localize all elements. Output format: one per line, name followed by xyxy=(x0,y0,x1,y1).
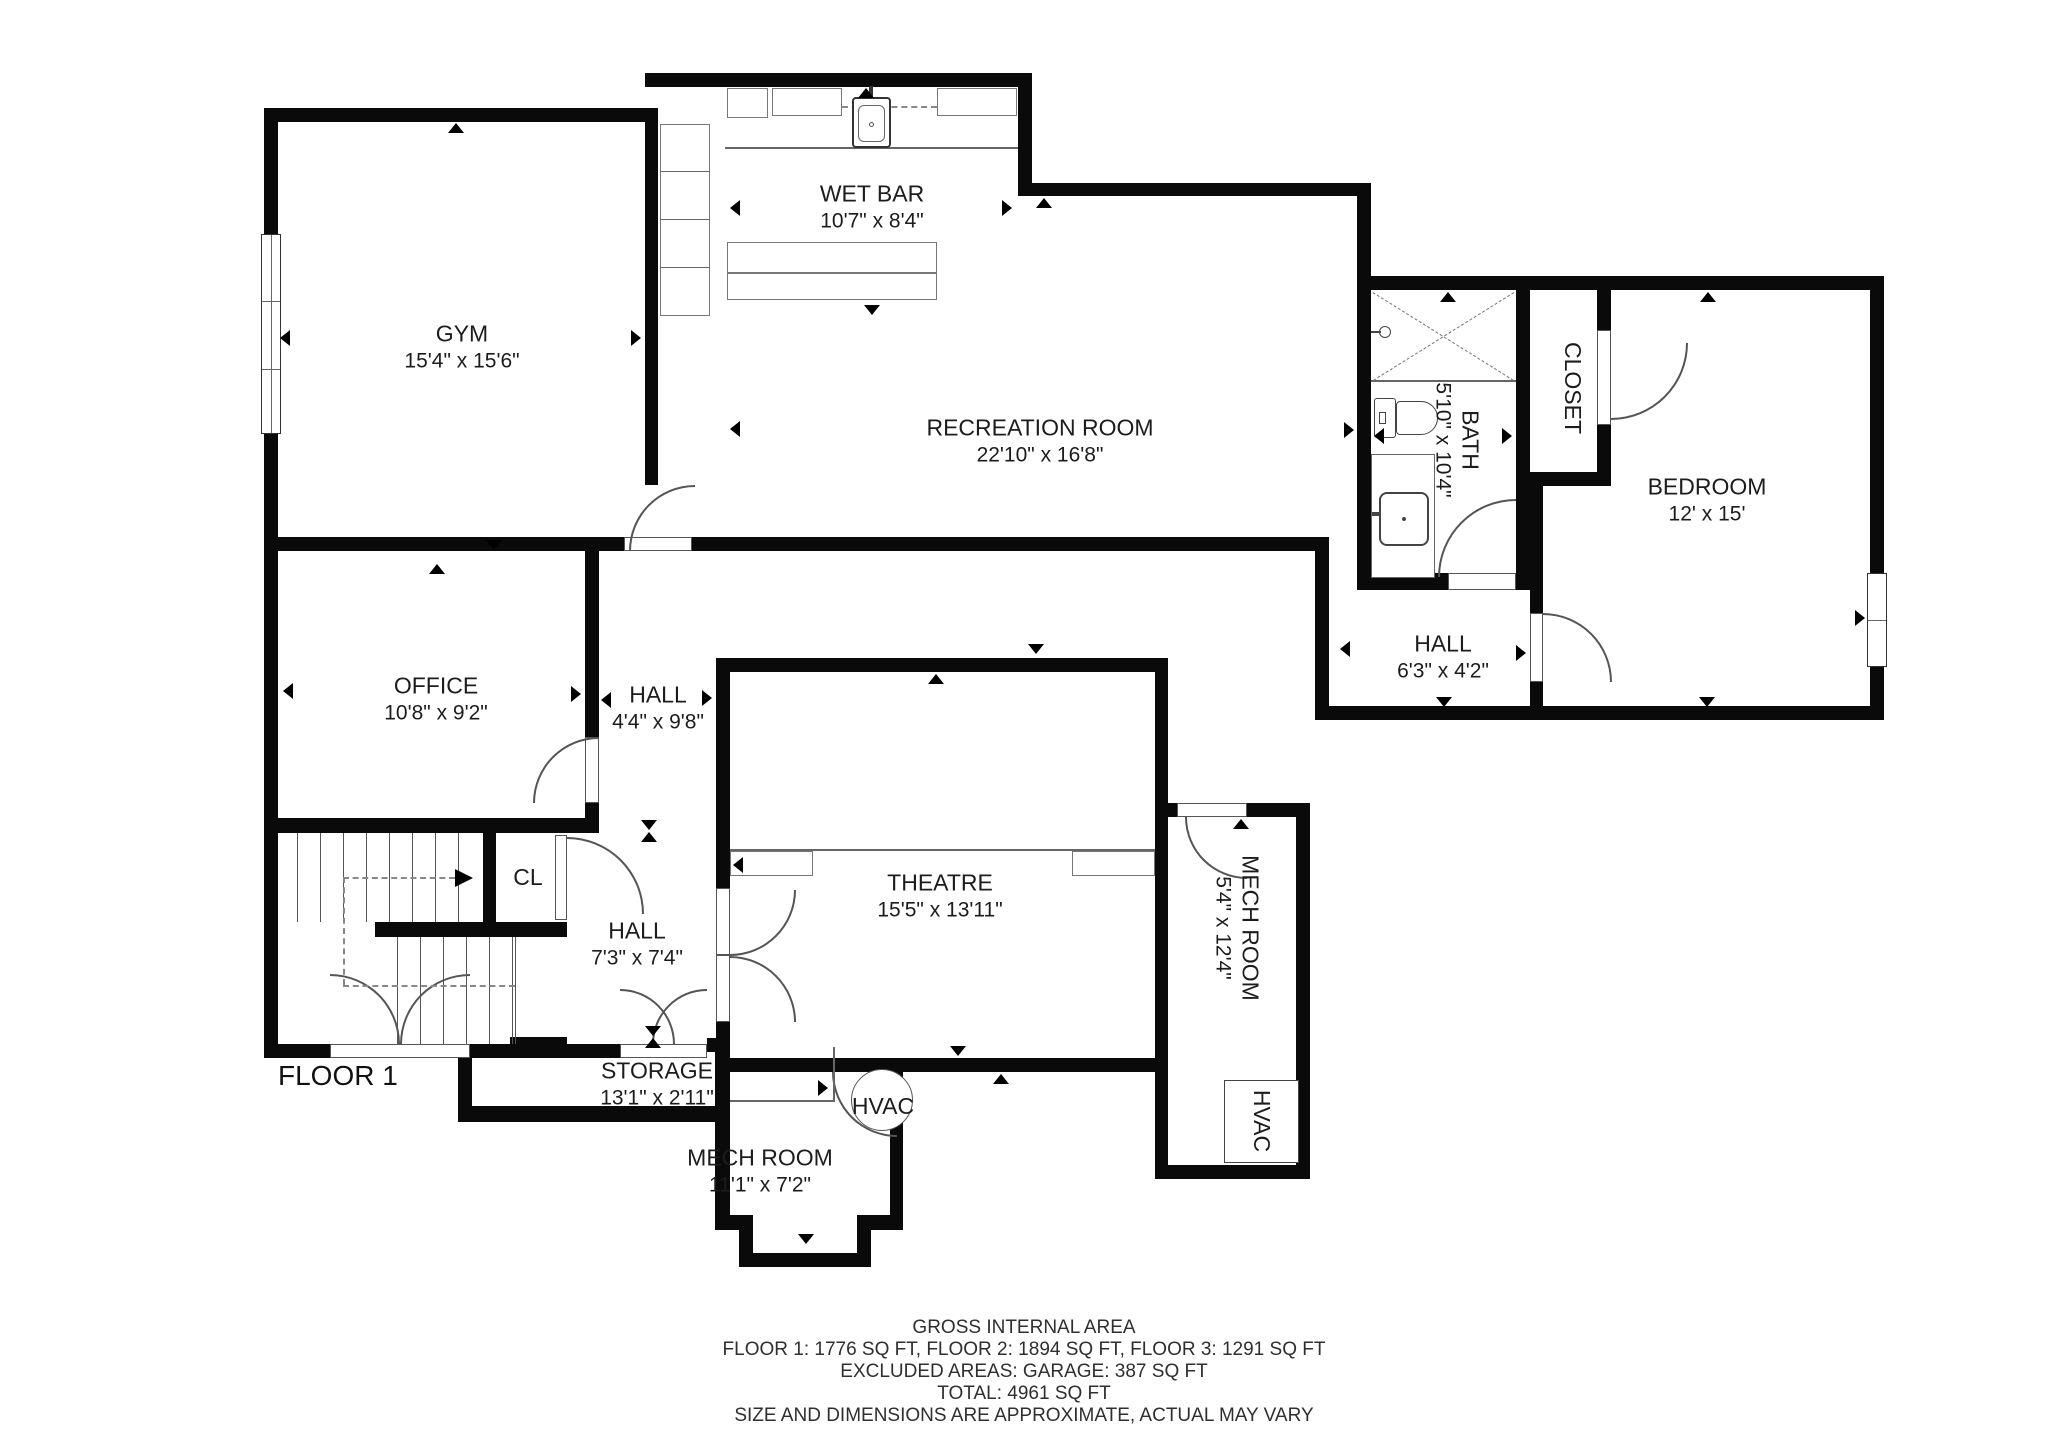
bar-sink xyxy=(852,97,891,148)
room-dims: 15'4" x 15'6" xyxy=(404,348,519,373)
room-name: CL xyxy=(513,864,542,892)
room-name: HALL xyxy=(591,918,683,946)
dimension-marker xyxy=(1440,292,1456,302)
wall xyxy=(1155,672,1168,1072)
dimension-marker xyxy=(730,421,740,437)
bar-sink-drain xyxy=(869,122,874,127)
wall xyxy=(1032,183,1357,196)
wall xyxy=(264,108,278,235)
dimension-marker xyxy=(1028,644,1044,654)
door-arc xyxy=(567,837,644,914)
dimension-marker xyxy=(1233,819,1249,829)
door-arc xyxy=(533,737,599,803)
room-dims: 5'4" x 12'4" xyxy=(1211,855,1236,1001)
cabinet xyxy=(727,88,768,118)
shelf-line xyxy=(661,267,709,268)
room-label-hall-right: HALL 6'3" x 4'2" xyxy=(1397,631,1489,684)
wall xyxy=(692,537,1329,551)
wall xyxy=(707,1038,730,1052)
dimension-marker xyxy=(798,1234,814,1244)
dimension-marker xyxy=(645,1038,661,1048)
wall xyxy=(1155,1072,1168,1179)
equipment-line xyxy=(833,1047,835,1102)
dimension-marker xyxy=(818,1080,828,1096)
stair-direction-line xyxy=(343,877,455,879)
stair-direction-arrow xyxy=(455,869,473,887)
room-name: STORAGE xyxy=(600,1058,714,1086)
dimension-marker xyxy=(1700,292,1716,302)
room-name: BEDROOM xyxy=(1648,474,1767,502)
dimension-marker xyxy=(1344,422,1354,438)
footer-line-total: TOTAL: 4961 SQ FT xyxy=(0,1383,2048,1404)
wall xyxy=(716,658,730,888)
theatre-knee-wall xyxy=(1072,851,1155,876)
wall xyxy=(1155,1165,1310,1179)
wall xyxy=(275,537,624,551)
dimension-marker xyxy=(1374,428,1384,444)
dimension-marker xyxy=(733,857,743,873)
dimension-marker xyxy=(1002,200,1012,216)
wall xyxy=(264,562,278,1058)
room-label-theatre: THEATRE 15'5" x 13'11" xyxy=(877,870,1002,923)
dimension-marker xyxy=(280,330,290,346)
vanity-faucet xyxy=(1372,512,1381,516)
room-dims: 13'1" x 2'11" xyxy=(600,1085,714,1110)
window-divider xyxy=(262,301,280,302)
room-name: MECH ROOM xyxy=(687,1145,833,1173)
wall xyxy=(716,658,1168,672)
room-name: HVAC xyxy=(1247,1090,1275,1152)
label-hvac-box: HVAC xyxy=(1247,1090,1275,1152)
dimension-marker xyxy=(1340,641,1350,657)
door-arc xyxy=(1611,343,1688,420)
dimension-marker xyxy=(928,674,944,684)
dimension-marker xyxy=(283,683,293,699)
window xyxy=(261,234,281,434)
dimension-marker xyxy=(864,305,880,315)
room-name: RECREATION ROOM xyxy=(926,415,1153,443)
door-leaf xyxy=(1177,803,1247,817)
room-dims: 4'4" x 9'8" xyxy=(612,709,704,734)
room-name: WET BAR xyxy=(820,181,924,209)
door-opening xyxy=(330,1044,470,1058)
dimension-marker xyxy=(645,1026,661,1036)
wall xyxy=(567,1044,620,1058)
wall xyxy=(1597,425,1611,486)
room-dims: 5'10" x 10'4" xyxy=(1431,382,1456,497)
room-name: THEATRE xyxy=(877,870,1002,898)
room-label-bath: BATH 5'10" x 10'4" xyxy=(1431,382,1484,497)
room-label-recreation-room: RECREATION ROOM 22'10" x 16'8" xyxy=(926,415,1153,468)
room-name: OFFICE xyxy=(384,673,488,701)
wall xyxy=(275,1044,330,1058)
stair-step xyxy=(443,937,444,1044)
room-name: CLOSET xyxy=(1558,342,1586,434)
stair-direction-line xyxy=(343,985,515,987)
stair-step xyxy=(320,833,321,922)
shower-head-icon xyxy=(1379,326,1391,338)
shelf-line xyxy=(661,219,709,220)
dimension-marker xyxy=(601,692,611,708)
dimension-marker xyxy=(486,540,502,550)
room-name: BATH xyxy=(1456,382,1484,497)
dimension-marker xyxy=(448,123,464,133)
stair-step xyxy=(297,833,298,922)
dimension-marker xyxy=(429,564,445,574)
room-name: HALL xyxy=(612,682,704,710)
door-leaf xyxy=(716,888,730,955)
wall xyxy=(1315,537,1329,720)
dimension-marker xyxy=(730,200,740,216)
toilet-flush xyxy=(1379,412,1386,424)
room-dims: 15'5" x 13'11" xyxy=(877,897,1002,922)
dimension-marker xyxy=(1502,428,1512,444)
room-label-wet-bar: WET BAR 10'7" x 8'4" xyxy=(820,181,924,234)
room-dims: 10'7" x 8'4" xyxy=(820,208,924,233)
room-name: GYM xyxy=(404,321,519,349)
wall xyxy=(730,1058,1168,1072)
dimension-marker xyxy=(641,832,657,842)
room-dims: 11'1" x 7'2" xyxy=(687,1172,833,1197)
room-name: HALL xyxy=(1397,631,1489,659)
door-arc xyxy=(730,890,796,956)
dimension-marker xyxy=(1036,198,1052,208)
stair-step xyxy=(466,937,467,1044)
window-divider xyxy=(1868,620,1886,621)
wall xyxy=(645,122,658,485)
wall xyxy=(739,1253,871,1267)
window xyxy=(1867,573,1887,667)
dimension-marker xyxy=(1855,610,1865,626)
equipment-line xyxy=(730,1100,833,1102)
dimension-marker xyxy=(641,820,657,830)
room-label-office: OFFICE 10'8" x 9'2" xyxy=(384,673,488,726)
shelf-line xyxy=(661,171,709,172)
wall xyxy=(1168,803,1177,817)
door-opening xyxy=(620,1044,707,1058)
dimension-marker xyxy=(993,1074,1009,1084)
room-label-cl: CL xyxy=(513,864,542,892)
footer-line-gross-area: GROSS INTERNAL AREA xyxy=(0,1317,2048,1338)
wall xyxy=(1516,290,1530,486)
wall xyxy=(1315,706,1884,720)
wall xyxy=(470,1044,510,1058)
room-dims: 10'8" x 9'2" xyxy=(384,700,488,725)
dimension-marker xyxy=(1436,697,1452,707)
dimension-marker xyxy=(1516,645,1526,661)
wall xyxy=(1516,486,1530,590)
dimension-marker xyxy=(858,88,874,98)
floor-label: FLOOR 1 xyxy=(278,1060,398,1092)
door-arc xyxy=(1438,499,1516,577)
wall xyxy=(715,1038,730,1230)
footer-line-excluded: EXCLUDED AREAS: GARAGE: 387 SQ FT xyxy=(0,1361,2048,1382)
dimension-marker xyxy=(631,330,641,346)
stair-edge xyxy=(515,937,516,1044)
room-dims: 12' x 15' xyxy=(1648,501,1767,526)
door-leaf xyxy=(1530,613,1543,682)
wall xyxy=(585,551,599,737)
door-arc xyxy=(1543,613,1612,682)
footer-line-floor-areas: FLOOR 1: 1776 SQ FT, FLOOR 2: 1894 SQ FT… xyxy=(0,1339,2048,1360)
stair-step xyxy=(512,937,513,1044)
stair-step xyxy=(489,937,490,1044)
room-label-hall-upper: HALL 4'4" x 9'8" xyxy=(612,682,704,735)
cabinet xyxy=(937,88,1017,116)
door-arc xyxy=(629,485,695,551)
stair-direction-line xyxy=(343,877,345,985)
room-label-mech-room-right: MECH ROOM 5'4" x 12'4" xyxy=(1211,855,1264,1001)
wall xyxy=(275,818,593,833)
wall xyxy=(1530,486,1543,613)
wall xyxy=(645,73,1032,87)
wall xyxy=(1018,73,1032,196)
room-dims: 6'3" x 4'2" xyxy=(1397,658,1489,683)
stair-step xyxy=(397,937,398,1044)
window-divider xyxy=(262,369,280,370)
stair-step xyxy=(420,937,421,1044)
label-hvac: HVAC xyxy=(852,1093,914,1121)
room-label-gym: GYM 15'4" x 15'6" xyxy=(404,321,519,374)
wall xyxy=(1597,290,1611,330)
room-label-mech-room-bottom: MECH ROOM 11'1" x 7'2" xyxy=(687,1145,833,1198)
vanity-drain xyxy=(1402,517,1406,521)
room-name: HVAC xyxy=(852,1093,914,1121)
footer-summary: GROSS INTERNAL AREA FLOOR 1: 1776 SQ FT,… xyxy=(0,1316,2048,1426)
door-arc xyxy=(730,956,796,1022)
dimension-marker xyxy=(571,686,581,702)
room-name: MECH ROOM xyxy=(1236,855,1264,1001)
room-dims: 7'3" x 7'4" xyxy=(591,945,683,970)
door-leaf xyxy=(716,955,730,1022)
room-label-hall-lower: HALL 7'3" x 7'4" xyxy=(591,918,683,971)
floor-plan: GYM 15'4" x 15'6" WET BAR 10'7" x 8'4" R… xyxy=(0,0,2048,1447)
room-label-bedroom: BEDROOM 12' x 15' xyxy=(1648,474,1767,527)
bar-counter xyxy=(727,273,937,300)
door-leaf xyxy=(1597,330,1611,425)
shelving xyxy=(660,124,710,316)
wall xyxy=(264,108,658,122)
room-dims: 22'10" x 16'8" xyxy=(926,442,1153,467)
room-label-storage: STORAGE 13'1" x 2'11" xyxy=(600,1058,714,1111)
dimension-marker xyxy=(950,1046,966,1056)
room-label-closet: CLOSET xyxy=(1558,342,1586,434)
cabinet xyxy=(772,88,842,116)
wall xyxy=(1357,183,1371,590)
bar-counter xyxy=(727,242,937,273)
window-divider xyxy=(271,235,272,433)
wall xyxy=(1357,276,1884,290)
dimension-marker xyxy=(1699,697,1715,707)
footer-line-disclaimer: SIZE AND DIMENSIONS ARE APPROXIMATE, ACT… xyxy=(0,1405,2048,1426)
